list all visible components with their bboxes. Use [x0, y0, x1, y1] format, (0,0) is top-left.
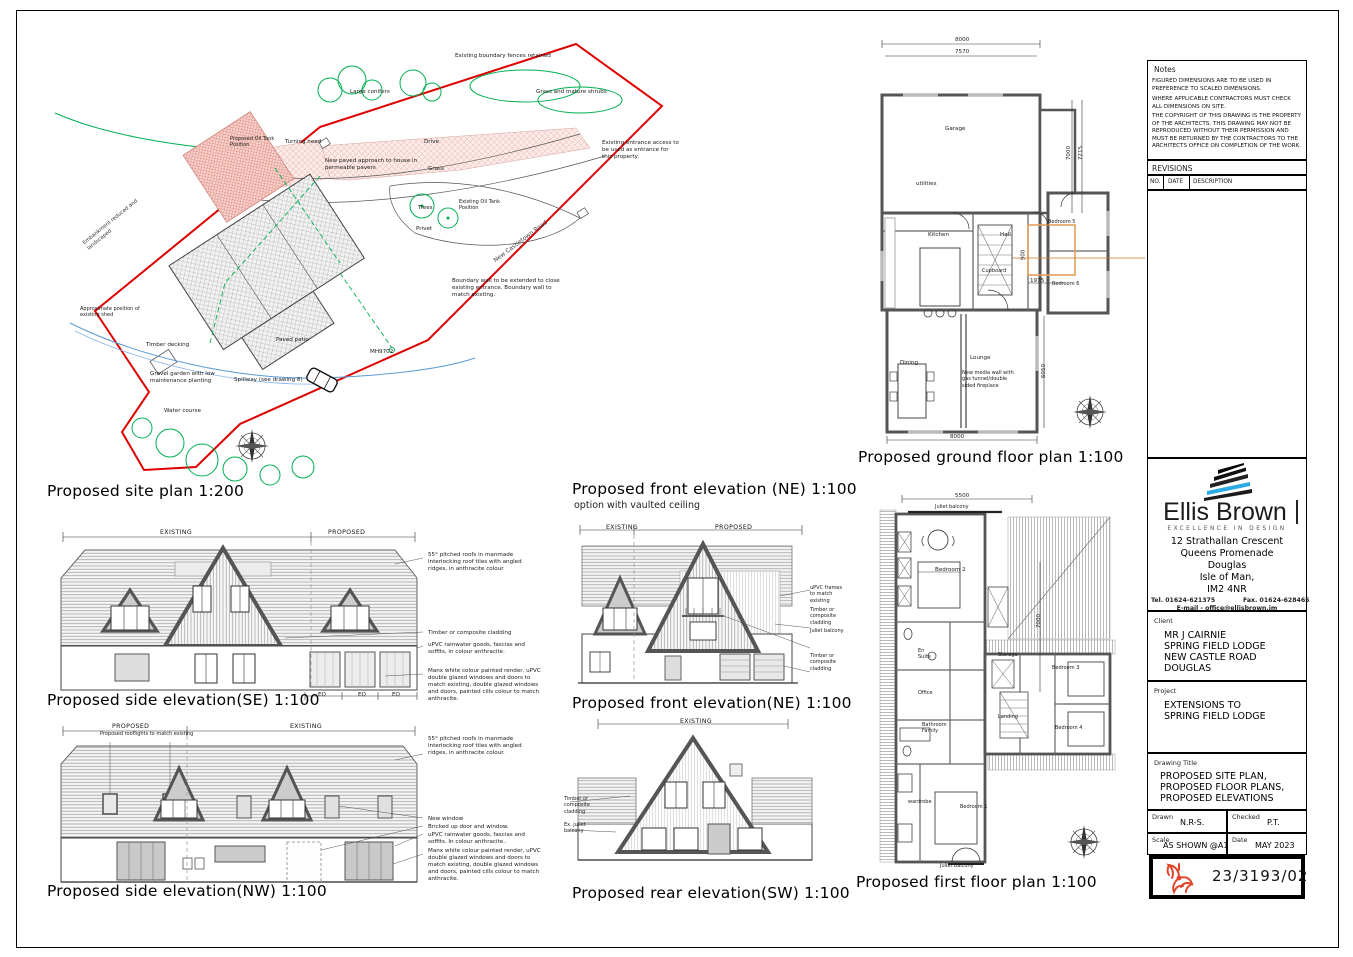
site-label-turning-head: Turning head — [285, 139, 321, 146]
nw-rooflights-note: Proposed rooflights to match existing — [100, 731, 193, 737]
ff-dim-5500: 5500 — [955, 493, 969, 499]
sw-elevation-drawing — [570, 712, 820, 880]
site-label-trees: Trees — [418, 205, 433, 212]
client-line-3: NEW CASTLE ROAD — [1164, 652, 1257, 663]
client-label: Client — [1154, 617, 1173, 625]
nev-note-frames: uPVC frames to match existing — [810, 585, 844, 604]
drawing-title-line-2: PROPOSED FLOOR PLANS, — [1160, 782, 1284, 793]
site-label-drive: Drive — [424, 139, 439, 146]
site-label-shrubs: Grass and mature shrubs — [536, 89, 607, 96]
nw-existing-label: EXISTING — [290, 723, 322, 730]
ff-room-bed1: Bedroom 1 — [960, 804, 987, 810]
compass-icon — [1067, 825, 1101, 859]
site-plan-title: Proposed site plan 1:200 — [47, 482, 244, 500]
gf-room-bed5: Bedroom 5 — [1048, 219, 1075, 225]
se-note-roof: 55° pitched roofs in manmade interlockin… — [428, 552, 523, 573]
site-label-patio: Paved patio — [276, 337, 309, 344]
revisions-col-date: DATE — [1168, 179, 1183, 185]
checked-label: Checked — [1232, 813, 1260, 821]
project-line-2: SPRING FIELD LODGE — [1164, 711, 1266, 722]
se-eq-2: EQ — [358, 692, 366, 699]
sw-title: Proposed rear elevation(SW) 1:100 — [572, 884, 850, 902]
checked-value: P.T. — [1267, 818, 1280, 827]
nw-proposed-label: PROPOSED — [112, 723, 149, 730]
revisions-col-divider-2 — [1189, 175, 1190, 190]
phone-number: Tel. 01624-621375 — [1151, 597, 1215, 604]
nev-proposed-label: PROPOSED — [715, 524, 752, 531]
site-label-shed: Approximate position of existing shed — [80, 306, 142, 319]
site-label-decking: Timber decking — [146, 342, 189, 349]
address-line-4: Isle of Man, — [1147, 572, 1307, 583]
ne-elevation-drawing — [570, 516, 820, 698]
notes-label: Notes — [1154, 65, 1176, 74]
gf-room-hall: Hall — [1000, 232, 1011, 239]
gf-title: Proposed ground floor plan 1:100 — [858, 448, 1124, 466]
ff-compass — [1062, 820, 1106, 864]
ne-title: Proposed front elevation(NE) 1:100 — [572, 694, 852, 712]
gf-room-lounge: Lounge — [970, 355, 991, 362]
se-title: Proposed side elevation(SE) 1:100 — [47, 691, 320, 709]
gf-room-cupboard: Cupboard — [982, 268, 1006, 274]
site-label-paved: New paved approach to house in permeable… — [325, 158, 435, 172]
client-line-1: MR J CAIRNIE — [1164, 630, 1226, 641]
gf-room-dining: Dining — [900, 360, 918, 367]
gf-note-media-wall: New media wall with gas tunnel/double si… — [962, 370, 1022, 389]
brand-tagline: EXCELLENCE IN DESIGN — [1147, 526, 1307, 532]
gf-dim-1975: 1975 — [1030, 278, 1044, 284]
se-note-rainwater: uPVC rainwater goods, fascias and soffit… — [428, 642, 528, 656]
brand-cursor-bar — [1296, 500, 1298, 524]
drawn-value: N.R-S. — [1180, 818, 1204, 827]
client-line-4: DOUGLAS — [1164, 663, 1211, 674]
project-label: Project — [1154, 687, 1176, 695]
ff-title: Proposed first floor plan 1:100 — [856, 873, 1097, 891]
sw-existing-label: EXISTING — [680, 718, 712, 725]
gf-dim-7215: 7215 — [1078, 146, 1084, 160]
emblem-icon — [1158, 860, 1200, 896]
sw-note-cladding: Timber or composite cladding — [564, 796, 600, 815]
drawing-title-line-3: PROPOSED ELEVATIONS — [1160, 793, 1274, 804]
drawing-number: 23/3193/02 — [1212, 867, 1308, 885]
ellis-brown-logo — [1198, 462, 1258, 502]
scale-value: AS SHOWN @A1 — [1163, 841, 1228, 850]
se-note-render: Manx white colour painted render, uPVC d… — [428, 668, 543, 703]
gf-room-kitchen: Kitchen — [928, 232, 949, 239]
site-label-conifers: Large conifers — [350, 89, 390, 96]
drawing-sheet: Existing boundary fences retained Large … — [0, 0, 1353, 957]
nw-note-roof: 55° pitched roofs in manmade interlockin… — [428, 736, 523, 757]
nw-note-rainwater: uPVC rainwater goods, fascias and soffit… — [428, 832, 528, 846]
project-line-1: EXTENSIONS TO — [1164, 700, 1241, 711]
nw-note-render: Manx white colour painted render, uPVC d… — [428, 848, 546, 883]
address-line-5: IM2 4NR — [1147, 584, 1307, 595]
revisions-col-desc: DESCRIPTION — [1193, 179, 1232, 185]
revisions-body-box — [1147, 190, 1307, 458]
gf-dim-7570: 7570 — [955, 49, 969, 55]
site-label-grass: Grass — [428, 166, 444, 173]
ff-room-storage: Storage — [998, 652, 1018, 658]
gf-dim-8000-top: 8000 — [955, 37, 969, 43]
nw-title: Proposed side elevation(NW) 1:100 — [47, 882, 327, 900]
site-label-oil-proposed: Proposed Oil Tank Position — [230, 136, 278, 149]
gf-dim-7000: 7000 — [1066, 146, 1072, 160]
drawn-label: Drawn — [1152, 813, 1173, 821]
fax-number: Fax. 01624-628465 — [1243, 597, 1309, 604]
gf-dim-8000-bottom: 8000 — [950, 434, 964, 440]
address-line-1: 12 Strathallan Crescent — [1147, 536, 1307, 547]
address-line-2: Queens Promenade — [1147, 548, 1307, 559]
site-label-spillway: Spillway (see drawing 8) — [234, 377, 303, 384]
brand-name: Ellis Brown — [1147, 498, 1303, 527]
nw-note-window: New window — [428, 816, 528, 823]
site-label-privet: Privet — [416, 226, 432, 233]
gf-room-bed6: Bedroom 6 — [1052, 281, 1079, 287]
gf-room-utilities: utilities — [916, 181, 937, 188]
revisions-col-no: NO. — [1150, 179, 1161, 185]
date-value: MAY 2023 — [1255, 841, 1295, 850]
ground-floor-drawing — [858, 36, 1150, 456]
ff-room-landing: Landing — [998, 714, 1018, 720]
nev-note-juliet: Juliet balcony — [810, 628, 844, 634]
nev-title: Proposed front elevation (NE) 1:100 — [572, 480, 857, 498]
site-plan-drawing — [20, 28, 850, 490]
se-note-cladding: Timber or composite cladding — [428, 630, 528, 637]
site-label-oil-existing: Existing Oil Tank Position — [459, 199, 514, 212]
gf-room-garage: Garage — [945, 126, 965, 133]
se-eq-3: EQ — [392, 692, 400, 699]
ff-room-bed3: Bedroom 3 — [1052, 665, 1079, 671]
ff-room-bed4: Bedroom 4 — [1055, 725, 1082, 731]
site-label-water: Water course — [164, 408, 201, 415]
gf-dim-6050: 6050 — [1041, 364, 1047, 378]
se-existing-label: EXISTING — [160, 529, 192, 536]
notes-paragraph-1: FIGURED DIMENSIONS ARE TO BE USED IN PRE… — [1152, 78, 1302, 93]
date-label: Date — [1232, 836, 1248, 844]
ff-juliet-top: Juliet balcony — [935, 504, 969, 510]
nw-elevation-drawing — [55, 720, 423, 890]
ff-room-office: Office — [918, 690, 933, 696]
compass-icon — [1073, 395, 1107, 429]
ff-juliet-bottom: Juliet balcony — [940, 863, 974, 869]
se-proposed-label: PROPOSED — [328, 529, 365, 536]
ff-room-bed2: Bedroom 2 — [935, 567, 966, 574]
ff-room-wardrobe: wardrobe — [908, 799, 932, 805]
ff-dim-7000: 7000 — [1036, 614, 1042, 628]
site-label-entrance: Existing entrance access to be used as e… — [602, 140, 680, 161]
client-line-2: SPRING FIELD LODGE — [1164, 641, 1266, 652]
revisions-label: REVISIONS — [1152, 164, 1193, 173]
drawing-title-label: Drawing Title — [1154, 759, 1197, 767]
site-label-mh: MH9702 — [370, 349, 393, 356]
gf-dim-900: 900 — [1020, 250, 1026, 261]
nev-note-cladding: Timber or composite cladding — [810, 607, 844, 626]
site-label-fences: Existing boundary fences retained — [455, 53, 585, 60]
site-label-gravel: Gravel garden with low maintenance plant… — [150, 371, 230, 385]
ff-room-bath: Bathroom Family — [922, 722, 944, 735]
address-line-3: Douglas — [1147, 560, 1307, 571]
revisions-col-divider-1 — [1163, 175, 1164, 190]
site-label-boundary-wall: Boundary wall to be extended to close ex… — [452, 278, 564, 299]
nev-existing-label: EXISTING — [606, 524, 638, 531]
nw-note-bricked: Bricked up door and window. — [428, 824, 528, 831]
drawing-title-line-1: PROPOSED SITE PLAN, — [1160, 771, 1267, 782]
notes-paragraph-2: WHERE APPLICABLE CONTRACTORS MUST CHECK … — [1152, 96, 1302, 111]
nev-note-cladding2: Timber or composite cladding — [810, 653, 844, 672]
ff-room-ensuite: En Suite — [918, 648, 934, 661]
car-icon — [305, 367, 338, 393]
nev-subtitle: option with vaulted ceiling — [574, 500, 700, 511]
notes-paragraph-3: THE COPYRIGHT OF THIS DRAWING IS THE PRO… — [1152, 113, 1304, 151]
sw-note-ex-juliet: Ex. juliet balcony — [564, 822, 600, 835]
se-elevation-drawing — [55, 526, 423, 700]
